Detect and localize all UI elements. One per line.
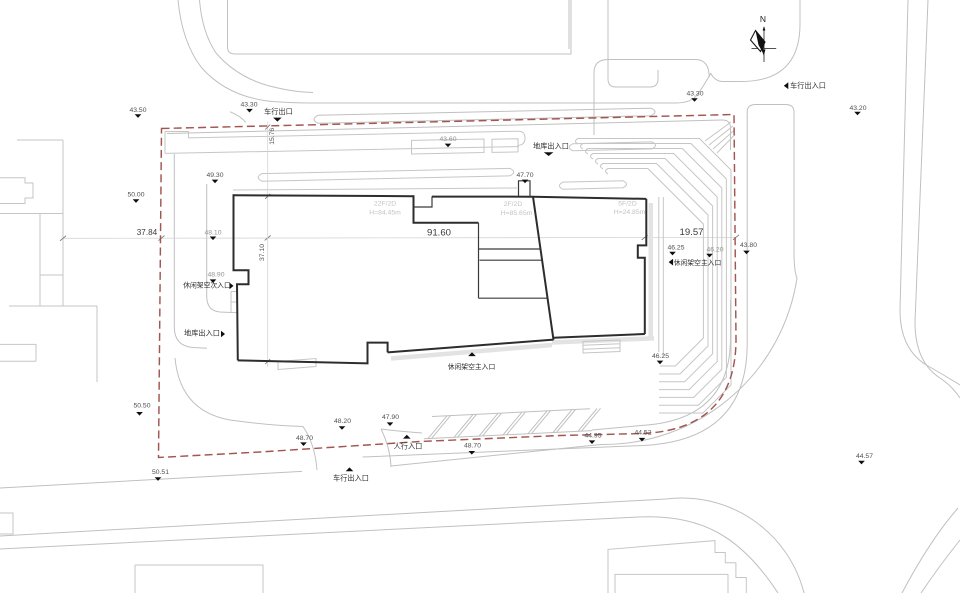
svg-text:44.57: 44.57: [856, 453, 873, 460]
svg-text:H=85.65m: H=85.65m: [501, 210, 533, 217]
svg-text:43.30: 43.30: [686, 91, 703, 98]
svg-text:地库出入口: 地库出入口: [533, 142, 569, 151]
svg-text:46.20: 46.20: [706, 247, 723, 254]
svg-text:休闲架空次入口: 休闲架空次入口: [183, 280, 231, 289]
svg-text:43.60: 43.60: [439, 136, 456, 143]
svg-text:44.95: 44.95: [584, 432, 601, 439]
svg-text:车行出口: 车行出口: [264, 107, 293, 116]
svg-text:休闲架空主入口: 休闲架空主入口: [674, 258, 722, 267]
svg-text:48.10: 48.10: [204, 230, 221, 237]
svg-text:50.50: 50.50: [133, 403, 150, 410]
svg-text:车行出入口: 车行出入口: [333, 474, 369, 483]
svg-text:37.10: 37.10: [259, 244, 266, 261]
svg-text:47.90: 47.90: [382, 414, 399, 421]
svg-text:43.80: 43.80: [740, 242, 757, 249]
svg-text:91.60: 91.60: [427, 228, 451, 239]
svg-text:49.30: 49.30: [206, 172, 223, 179]
svg-text:H=24.85m: H=24.85m: [614, 209, 646, 216]
svg-text:43.30: 43.30: [240, 101, 257, 108]
svg-text:15.76: 15.76: [269, 128, 276, 145]
svg-text:48.90: 48.90: [207, 272, 224, 279]
svg-text:休闲架空主入口: 休闲架空主入口: [448, 362, 496, 371]
svg-text:5F/2D: 5F/2D: [618, 200, 637, 207]
svg-text:H=84.45m: H=84.45m: [369, 210, 401, 217]
svg-text:46.25: 46.25: [667, 244, 684, 251]
svg-text:2F/2D: 2F/2D: [504, 201, 523, 208]
svg-text:48.70: 48.70: [464, 442, 481, 449]
svg-text:37.84: 37.84: [137, 228, 158, 237]
svg-text:50.00: 50.00: [127, 192, 144, 199]
svg-text:47.70: 47.70: [516, 172, 533, 179]
svg-text:44.52: 44.52: [634, 430, 651, 437]
svg-text:46.25: 46.25: [652, 353, 669, 360]
svg-text:50.51: 50.51: [152, 469, 169, 476]
svg-text:48.20: 48.20: [334, 418, 351, 425]
svg-text:人行入口: 人行入口: [394, 441, 423, 450]
svg-text:N: N: [760, 14, 766, 24]
svg-text:48.70: 48.70: [296, 435, 313, 442]
svg-text:22F/2D: 22F/2D: [374, 201, 396, 208]
svg-text:地库出入口: 地库出入口: [184, 329, 220, 338]
svg-text:43.50: 43.50: [129, 107, 146, 114]
svg-text:车行出入口: 车行出入口: [790, 81, 826, 90]
svg-text:43.20: 43.20: [849, 105, 866, 112]
svg-text:19.57: 19.57: [679, 227, 703, 238]
